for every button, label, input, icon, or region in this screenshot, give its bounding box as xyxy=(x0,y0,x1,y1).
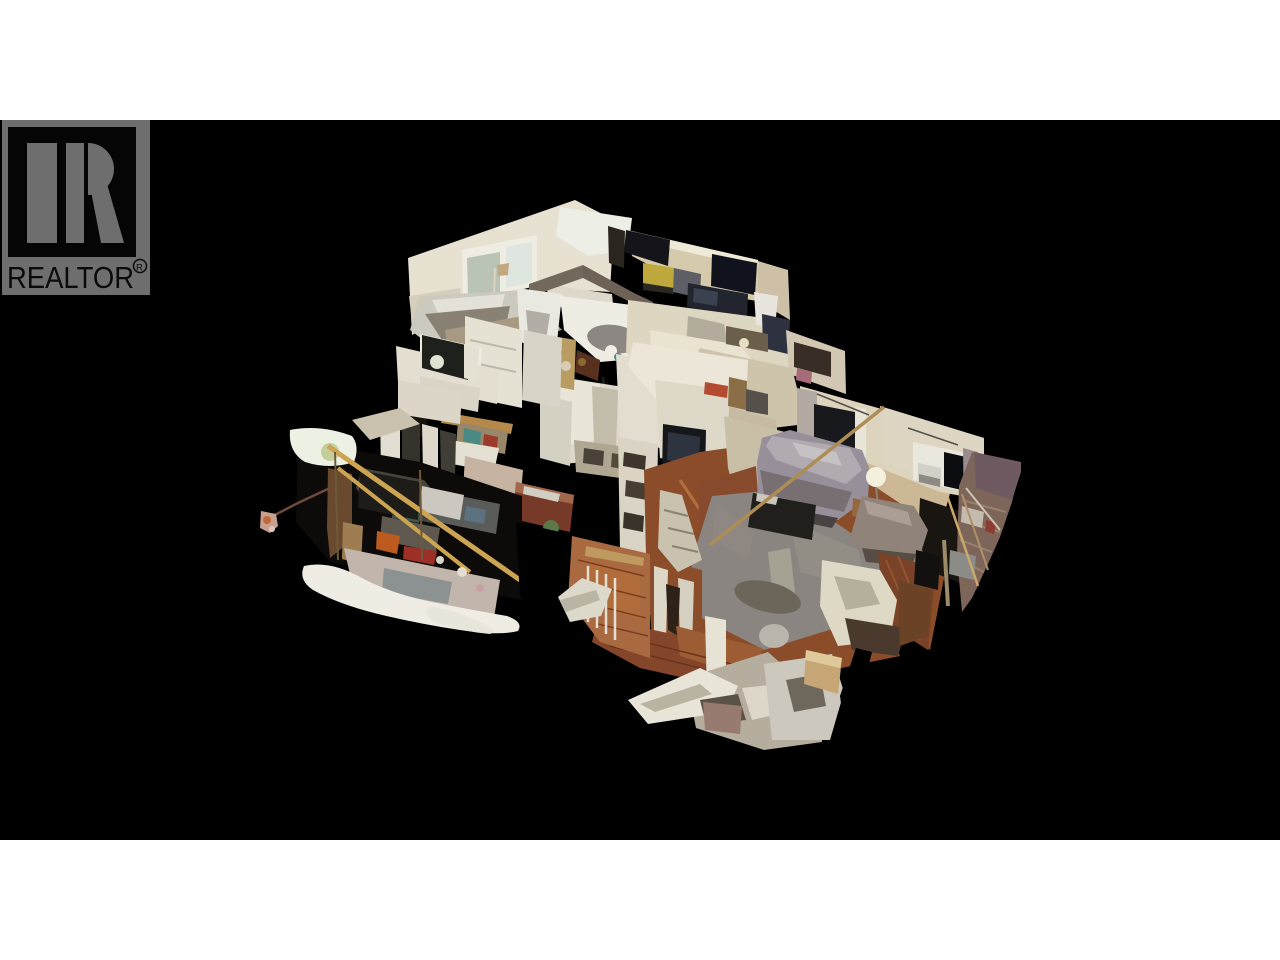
svg-text:REALTOR: REALTOR xyxy=(7,260,134,295)
svg-text:R: R xyxy=(136,263,143,274)
